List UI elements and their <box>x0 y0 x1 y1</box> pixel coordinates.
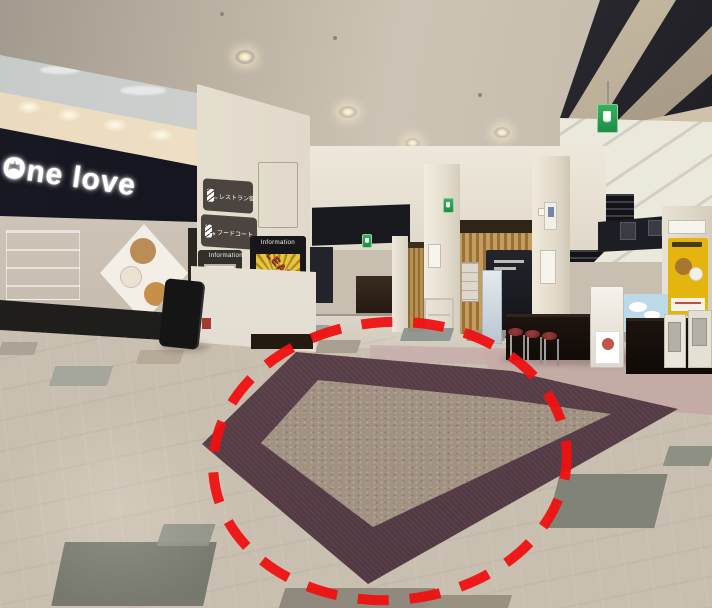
mall-interior-scene: One love ← レストラン街 フードコート <box>0 0 712 608</box>
dashed-circle-annotation <box>204 310 577 608</box>
annotation-overlay <box>0 0 712 608</box>
